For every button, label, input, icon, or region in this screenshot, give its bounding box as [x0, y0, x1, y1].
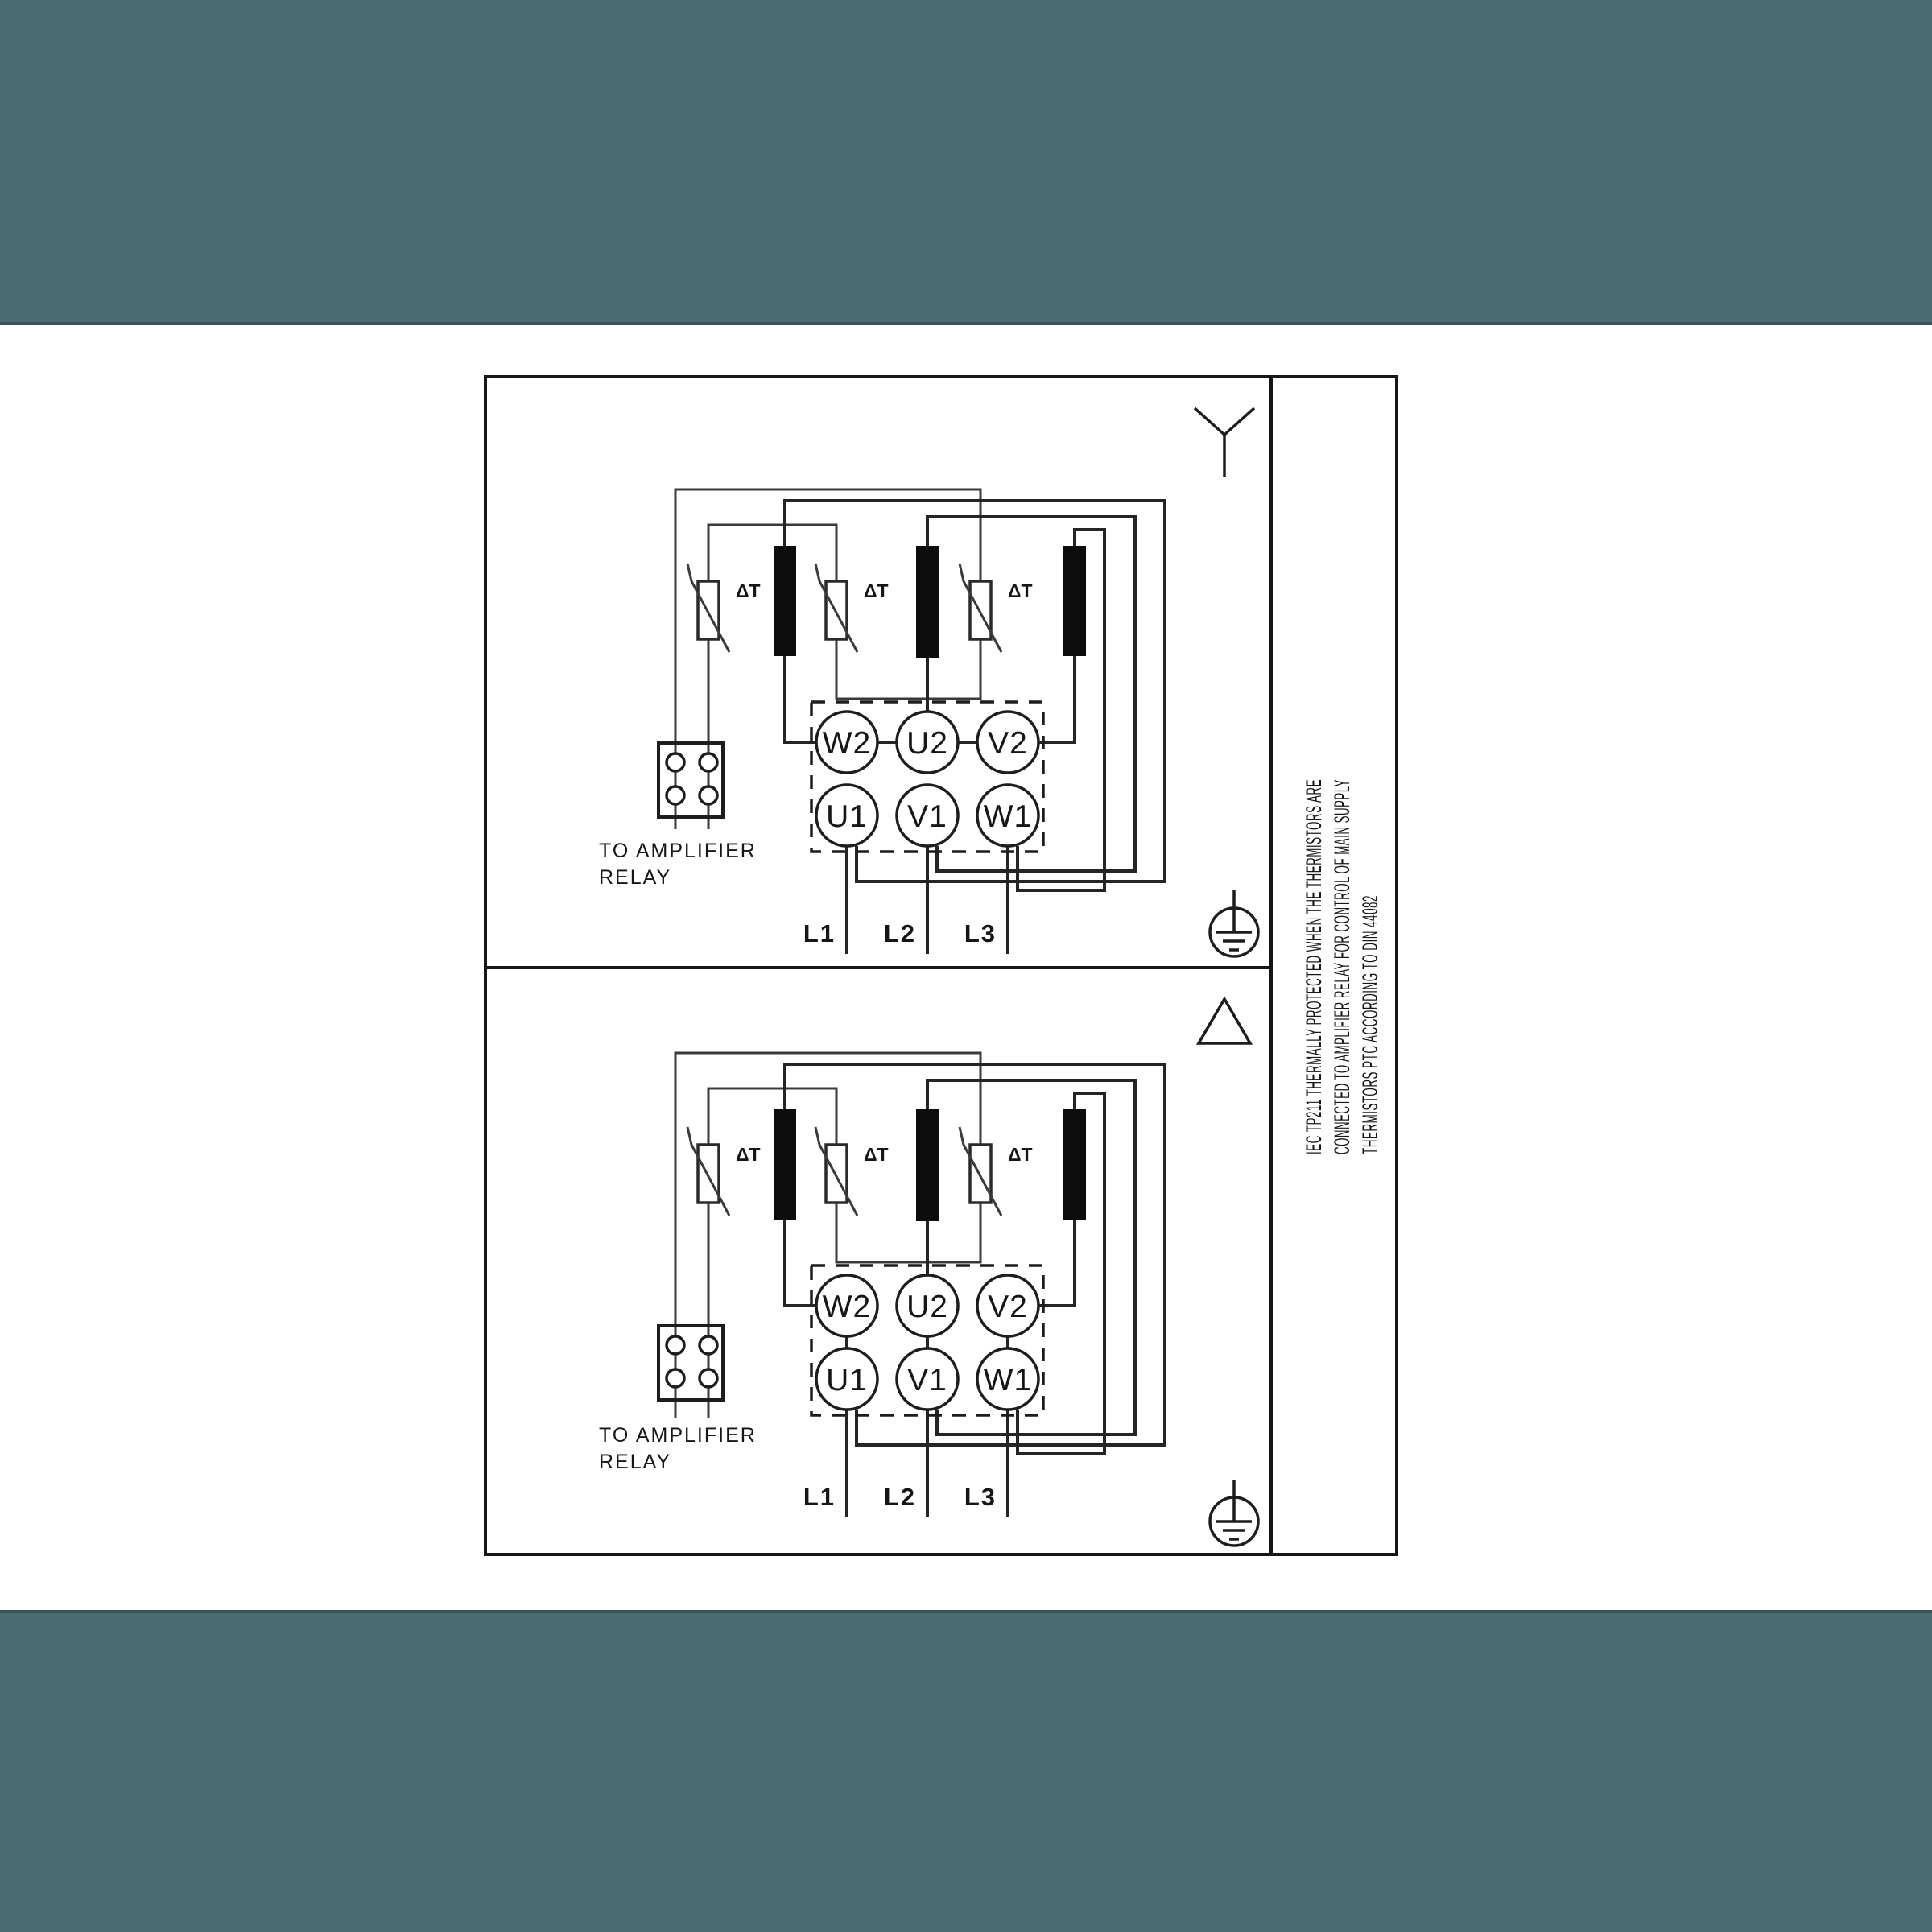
earth-ground-icon	[1210, 890, 1258, 956]
terminal-board-star: W2 U2 V2 U1 V1 W1	[811, 702, 1043, 852]
side-note-line3: THERMISTORS PTC ACCORDING TO DIN 44082	[1358, 895, 1382, 1154]
relay-terminal-icon	[667, 753, 684, 771]
panel-delta: ΔT ΔT ΔT TO AMPLIFIER RELAY	[599, 999, 1258, 1546]
motor-windings-star	[774, 546, 1086, 658]
thermistor-icon	[698, 1145, 719, 1203]
thermistor-label: ΔT	[864, 1144, 889, 1165]
terminal-label: W2	[823, 726, 872, 761]
winding-icon	[1063, 1109, 1086, 1220]
thermistor-icon	[970, 581, 991, 639]
terminal-label: U2	[906, 1290, 948, 1324]
winding-icon	[916, 1109, 939, 1221]
winding-icon	[774, 1109, 796, 1220]
mains-label-l1: L1	[803, 919, 836, 947]
thermistor-icon	[826, 581, 847, 639]
mains-label-l3: L3	[964, 919, 997, 947]
winding-icon	[1063, 546, 1086, 656]
thermistor-chain-wires-star	[675, 489, 980, 829]
relay-terminal-icon	[667, 786, 684, 804]
amplifier-relay-block-star: TO AMPLIFIER RELAY	[599, 743, 757, 889]
mains-label-l2: L2	[884, 919, 916, 947]
earth-ground-icon	[1210, 1480, 1258, 1546]
mains-label-l1: L1	[803, 1483, 836, 1511]
motor-windings-delta	[774, 1109, 1086, 1221]
wiring-diagram-page: ΔT ΔT ΔT TO AMPLIFIER RELAY	[0, 0, 1932, 1932]
thermistor-icon	[970, 1145, 991, 1203]
thermistor-label: ΔT	[1008, 580, 1033, 601]
thermistor-icon	[826, 1145, 847, 1203]
thermistor-label: ΔT	[864, 580, 889, 601]
relay-terminal-icon	[700, 786, 717, 804]
relay-terminal-icon	[667, 1336, 684, 1354]
delta-icon	[1199, 999, 1250, 1043]
terminal-label: V1	[907, 799, 947, 834]
winding-icon	[916, 546, 939, 658]
terminal-label: U1	[826, 1363, 868, 1397]
terminal-label: V2	[988, 726, 1028, 761]
side-note-line2: CONNECTED TO AMPLIFIER RELAY FOR CONTROL…	[1330, 779, 1354, 1154]
terminal-label: U1	[826, 799, 868, 834]
terminal-label: U2	[906, 726, 948, 761]
relay-terminal-icon	[700, 1369, 717, 1387]
mains-labels-star: L1 L2 L3	[803, 919, 997, 947]
thermistor-icon	[698, 581, 719, 639]
relay-terminal-icon	[700, 753, 717, 771]
mains-labels-delta: L1 L2 L3	[803, 1483, 997, 1511]
relay-terminal-icon	[667, 1369, 684, 1387]
star-icon	[1195, 408, 1254, 477]
terminal-label: W1	[984, 799, 1033, 834]
panel-star: ΔT ΔT ΔT TO AMPLIFIER RELAY	[599, 408, 1258, 956]
terminal-label: V1	[907, 1363, 947, 1397]
amplifier-relay-block-delta: TO AMPLIFIER RELAY	[599, 1326, 757, 1473]
relay-note-line1: TO AMPLIFIER	[599, 840, 757, 862]
relay-note-line2: RELAY	[599, 1451, 671, 1473]
thermistor-label: ΔT	[736, 1144, 761, 1165]
side-note: IEC TP211 THERMALLY PROTECTED WHEN THE T…	[1302, 779, 1382, 1154]
relay-terminal-icon	[700, 1336, 717, 1354]
terminal-label: V2	[988, 1290, 1028, 1324]
relay-note-line1: TO AMPLIFIER	[599, 1424, 757, 1447]
side-note-line1: IEC TP211 THERMALLY PROTECTED WHEN THE T…	[1302, 779, 1326, 1154]
thermistor-label: ΔT	[736, 580, 761, 601]
mains-label-l2: L2	[884, 1483, 916, 1511]
relay-note-line2: RELAY	[599, 866, 671, 889]
winding-icon	[774, 546, 796, 656]
terminal-label: W1	[984, 1363, 1033, 1397]
terminal-label: W2	[823, 1290, 872, 1324]
mains-label-l3: L3	[964, 1483, 997, 1511]
motor-wiring-diagram: ΔT ΔT ΔT TO AMPLIFIER RELAY	[0, 0, 1932, 1932]
thermistor-label: ΔT	[1008, 1144, 1033, 1165]
